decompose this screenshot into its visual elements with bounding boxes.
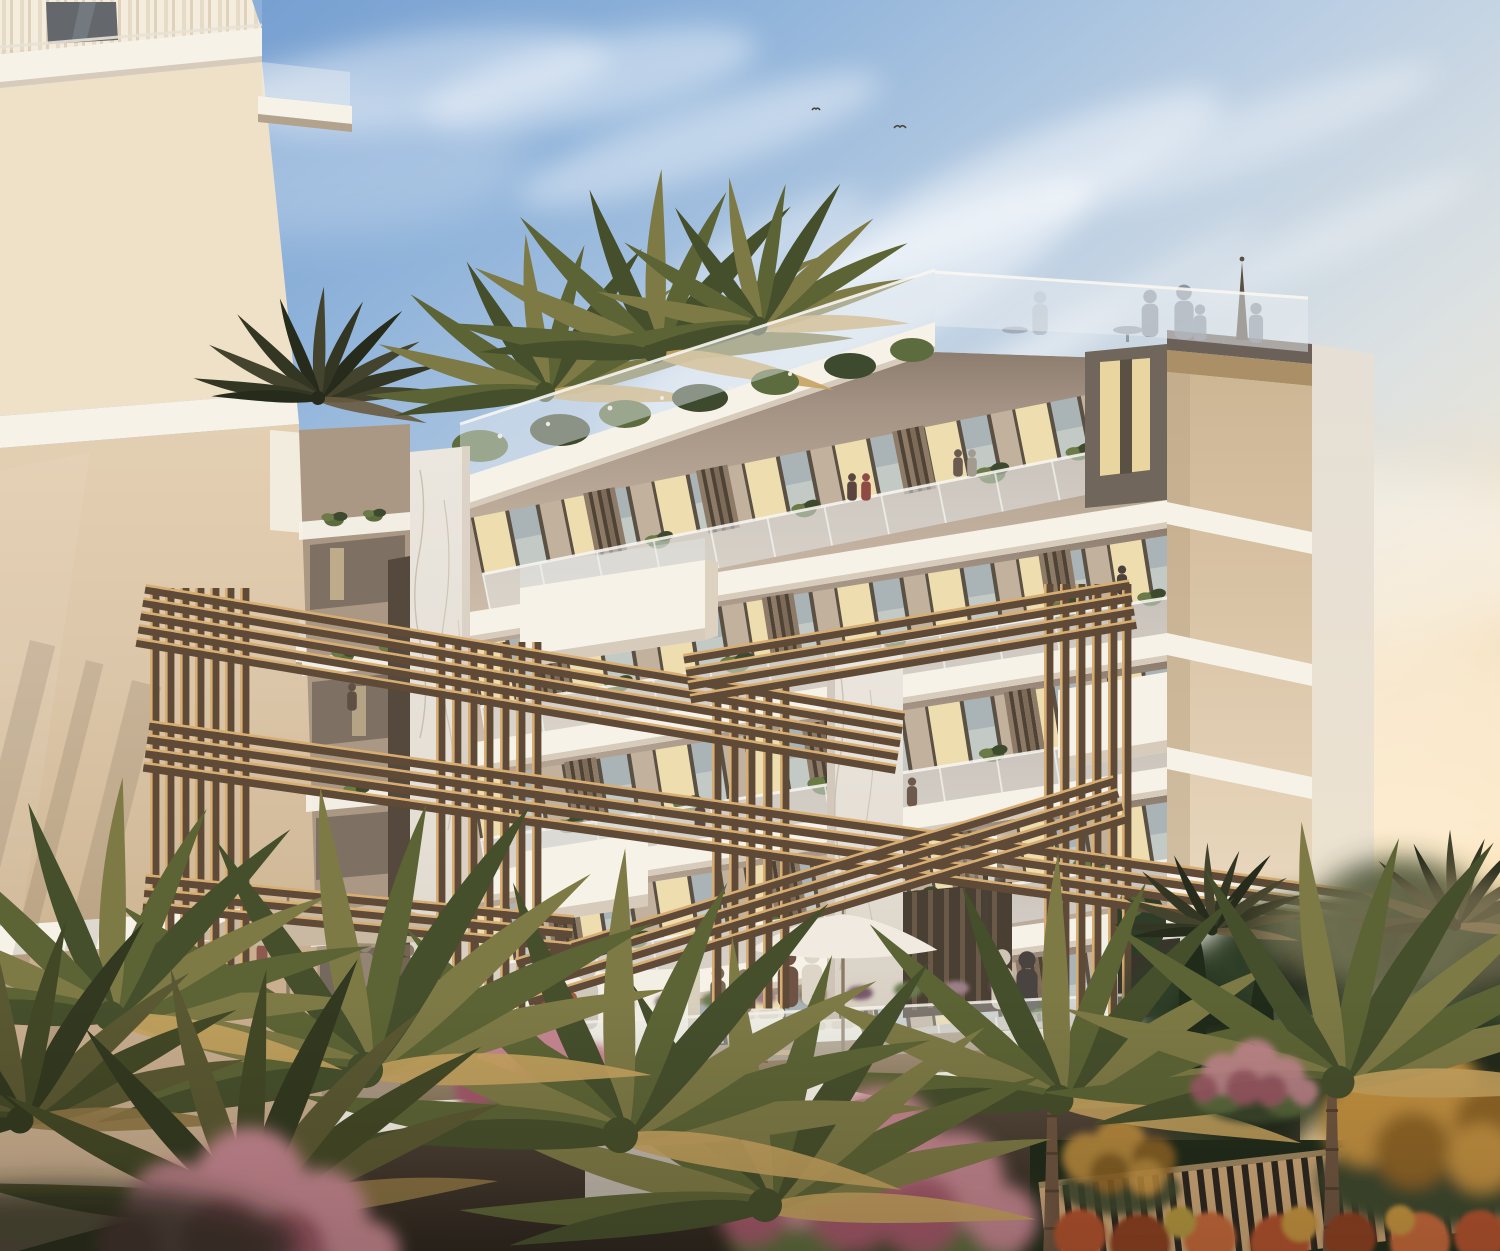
- rendered-scene: [0, 0, 1500, 1251]
- vignette: [0, 0, 1500, 1251]
